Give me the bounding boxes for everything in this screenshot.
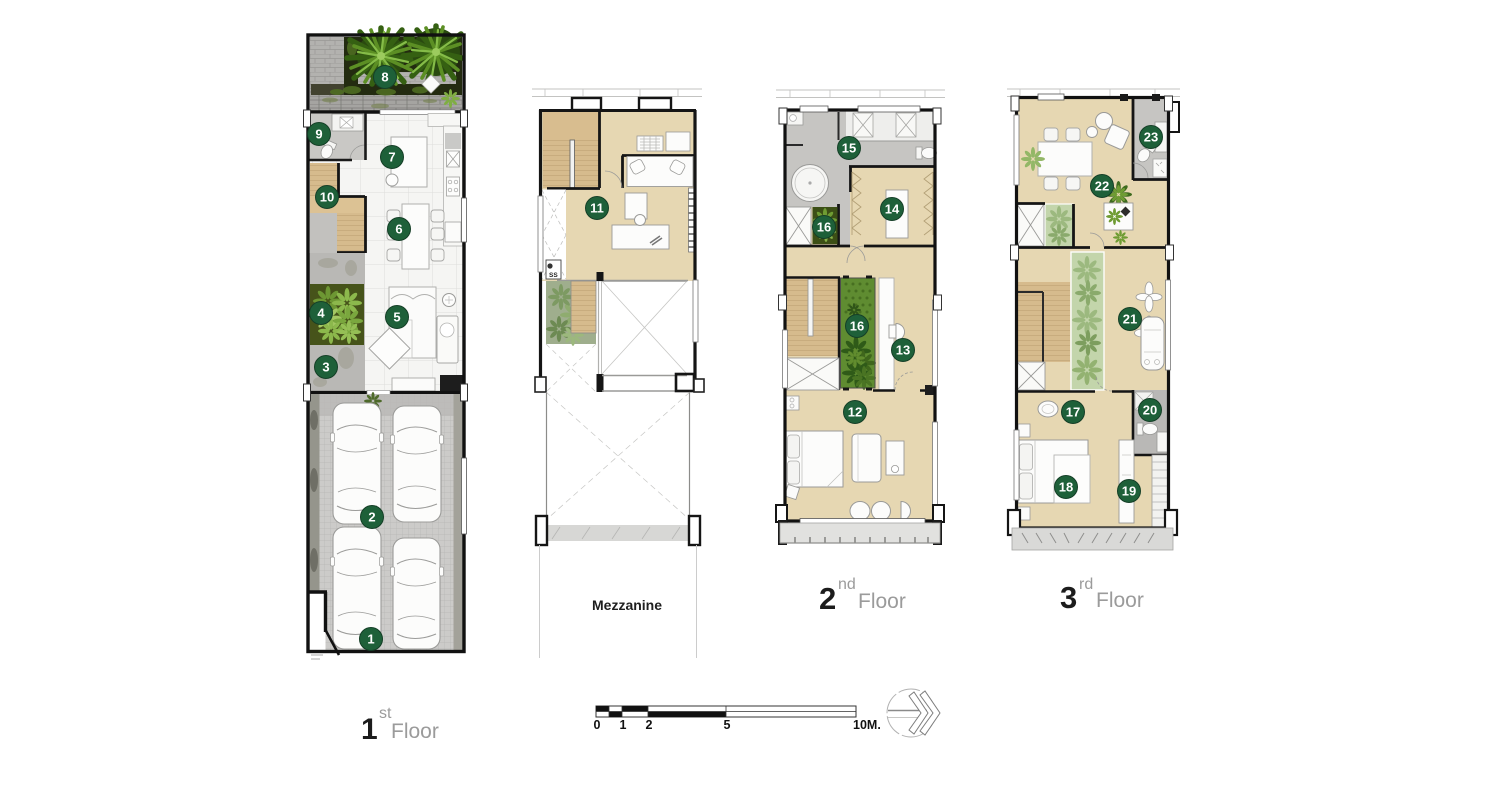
svg-text:14: 14 — [885, 202, 900, 217]
svg-text:SS: SS — [549, 272, 558, 279]
svg-text:9: 9 — [315, 127, 322, 142]
svg-text:19: 19 — [1122, 484, 1136, 499]
svg-text:13: 13 — [896, 343, 910, 358]
svg-text:5: 5 — [393, 310, 400, 325]
svg-text:2: 2 — [819, 581, 836, 616]
svg-text:10: 10 — [320, 190, 334, 205]
svg-text:10M.: 10M. — [853, 718, 881, 732]
svg-text:18: 18 — [1059, 480, 1073, 495]
svg-text:21: 21 — [1123, 312, 1137, 327]
svg-text:6: 6 — [395, 222, 402, 237]
svg-text:16: 16 — [850, 319, 864, 334]
svg-text:20: 20 — [1143, 403, 1157, 418]
svg-text:3: 3 — [322, 360, 329, 375]
svg-text:23: 23 — [1144, 130, 1158, 145]
svg-text:nd: nd — [838, 576, 856, 593]
svg-text:3: 3 — [1060, 580, 1077, 615]
svg-text:15: 15 — [842, 141, 856, 156]
svg-text:2: 2 — [646, 718, 653, 732]
svg-text:1: 1 — [361, 713, 378, 746]
svg-text:rd: rd — [1079, 576, 1093, 593]
svg-text:17: 17 — [1066, 405, 1080, 420]
svg-text:8: 8 — [381, 70, 388, 85]
svg-text:1: 1 — [367, 632, 374, 647]
svg-text:11: 11 — [590, 201, 604, 216]
svg-text:0: 0 — [594, 718, 601, 732]
svg-text:7: 7 — [388, 150, 395, 165]
svg-text:1: 1 — [620, 718, 627, 732]
svg-text:Mezzanine: Mezzanine — [592, 597, 662, 613]
svg-text:22: 22 — [1095, 179, 1109, 194]
svg-text:2: 2 — [368, 510, 375, 525]
svg-text:5: 5 — [724, 718, 731, 732]
svg-text:12: 12 — [848, 405, 862, 420]
svg-text:16: 16 — [817, 220, 831, 235]
svg-text:Floor: Floor — [391, 720, 439, 743]
svg-text:4: 4 — [317, 306, 325, 321]
svg-text:Floor: Floor — [1096, 589, 1144, 612]
svg-text:Floor: Floor — [858, 590, 906, 613]
